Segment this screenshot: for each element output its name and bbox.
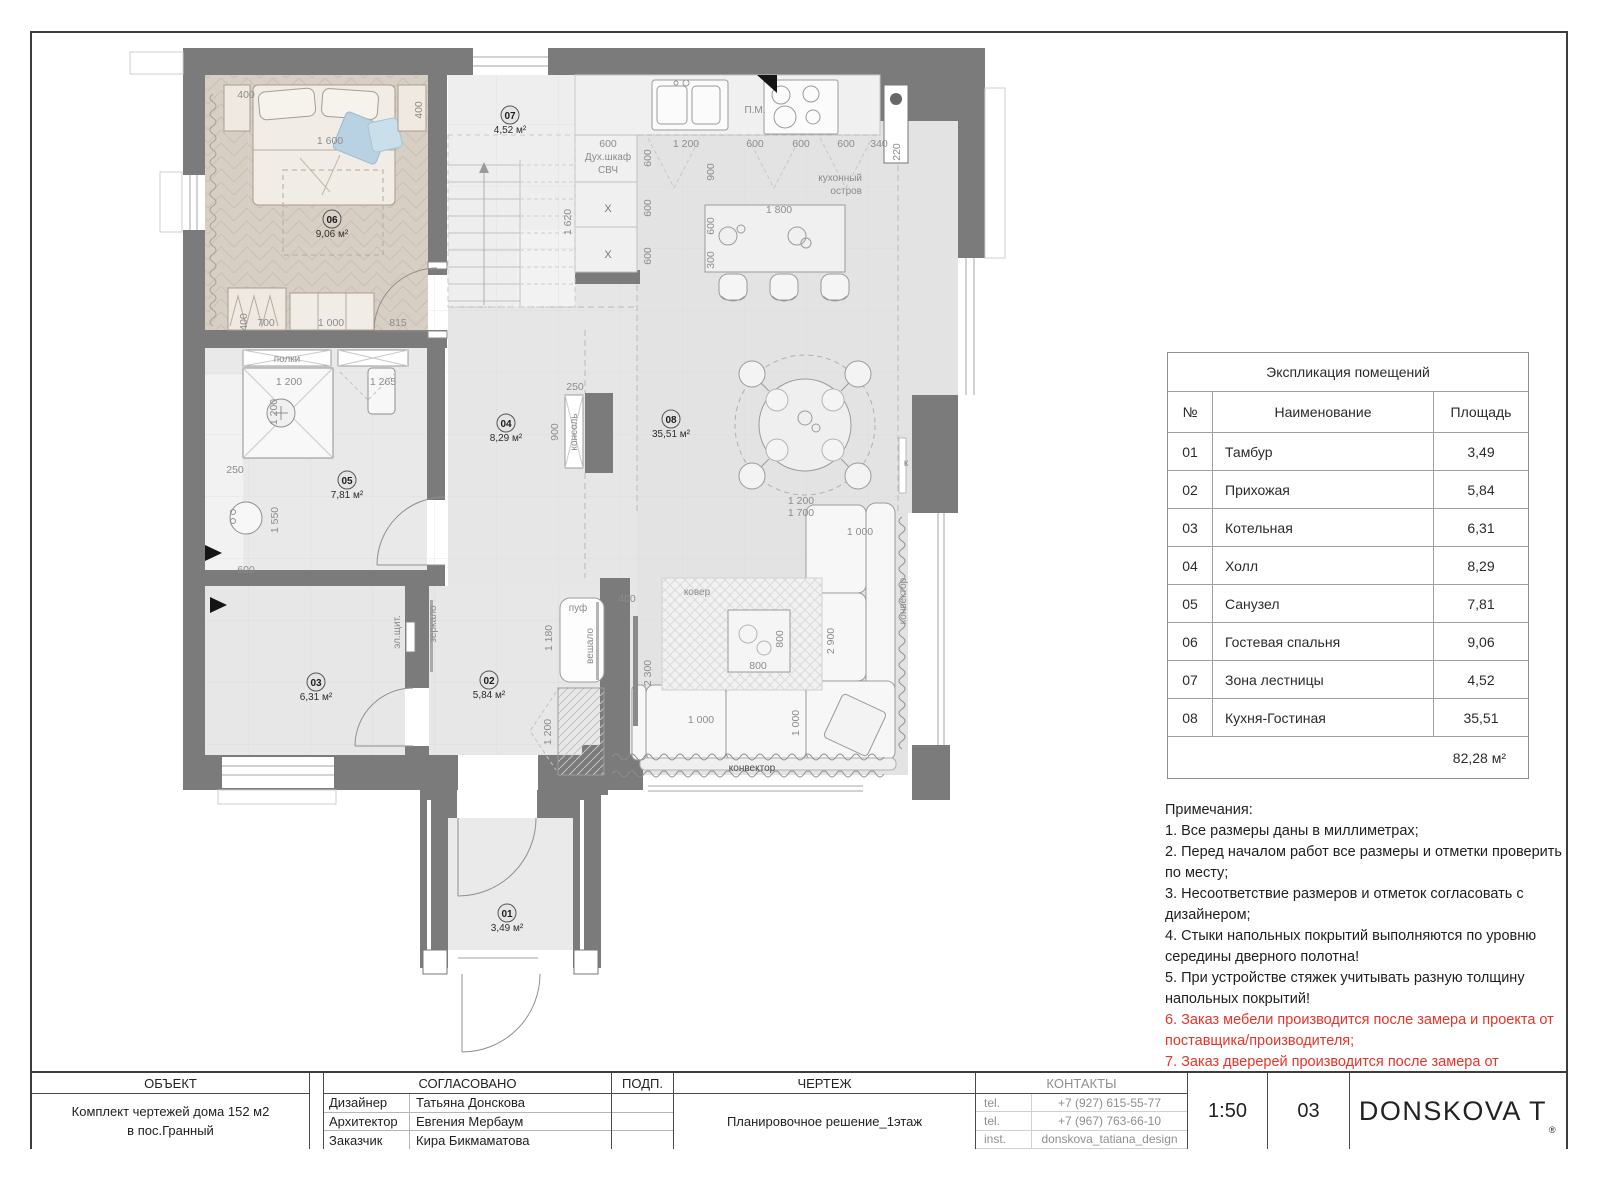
cell-name: Кухня-Гостиная	[1213, 699, 1434, 736]
room-area-label: 3,49 м²	[491, 923, 524, 934]
pouf-label: пуф	[569, 602, 588, 614]
approved-row: ЗаказчикКира Бикмаматова	[324, 1131, 611, 1149]
contacts-header: КОНТАКТЫ	[976, 1073, 1187, 1094]
dim-label: 800	[774, 630, 786, 648]
brand-section: DONSKOVA T®	[1350, 1073, 1566, 1149]
room-number: 02	[483, 676, 495, 687]
object-line2: в пос.Гранный	[127, 1122, 214, 1141]
cell-name: Котельная	[1213, 509, 1434, 546]
room-number: 05	[341, 476, 353, 487]
dim-label: 900	[705, 163, 717, 181]
dim-label: 600	[642, 199, 654, 217]
drawing-header: ЧЕРТЕЖ	[674, 1073, 975, 1094]
cell-num: 07	[1168, 661, 1213, 698]
dim-label: 250	[226, 464, 244, 476]
table-row: 06Гостевая спальня9,06	[1168, 623, 1528, 661]
dim-label: 800	[749, 660, 767, 672]
cell-area: 6,31	[1434, 509, 1528, 546]
dim-label: 600	[705, 217, 717, 235]
person-name: Евгения Мербаум	[410, 1114, 611, 1129]
note-item: 1. Все размеры даны в миллиметрах;	[1165, 821, 1577, 842]
tv	[633, 616, 638, 726]
table-row: 01Тамбур3,49	[1168, 433, 1528, 471]
room-area-label: 35,51 м²	[652, 429, 691, 440]
dim-label: 600	[642, 247, 654, 265]
role-label: Дизайнер	[324, 1094, 410, 1112]
island-label: кухонный	[818, 173, 862, 184]
room-number: 03	[310, 678, 322, 689]
room-number: 07	[504, 111, 516, 122]
cell-name: Зона лестницы	[1213, 661, 1434, 698]
dim-label: 1 000	[847, 526, 873, 538]
room-number: 04	[500, 419, 512, 430]
console-label: консоль	[569, 413, 580, 450]
note-item: 2. Перед началом работ все размеры и отм…	[1165, 842, 1577, 884]
cell-num: 06	[1168, 623, 1213, 660]
cabinet-x-mark: X	[604, 249, 612, 261]
shelves-label: полки	[274, 354, 301, 365]
scale-section: 1:50	[1188, 1073, 1268, 1149]
dim-label: 340	[870, 138, 888, 150]
room-area-label: 4,52 м²	[494, 125, 527, 136]
room-area-label: 9,06 м²	[316, 229, 349, 240]
scale-value: 1:50	[1188, 1073, 1267, 1149]
contact-type: inst.	[976, 1131, 1032, 1148]
contact-row: tel.+7 (927) 615-55-77	[976, 1094, 1187, 1112]
island-label: остров	[830, 186, 862, 197]
drawing-sheet: { "plan": { "rooms": [ {"num":"01","area…	[0, 0, 1600, 1180]
cell-area: 8,29	[1434, 547, 1528, 584]
cell-num: 02	[1168, 471, 1213, 508]
room-area-label: 5,84 м²	[473, 690, 506, 701]
dim-label: 700	[257, 317, 275, 329]
electrical-panel-label: эл.щит.	[392, 615, 403, 649]
room-area-label: 7,81 м²	[331, 490, 364, 501]
cell-num: 03	[1168, 509, 1213, 546]
table-row: 02Прихожая5,84	[1168, 471, 1528, 509]
dim-label: 300	[705, 251, 717, 269]
convector-label: конвектор	[729, 763, 776, 774]
dim-label: 2 900	[825, 628, 837, 654]
contact-value: +7 (967) 763-66-10	[1032, 1114, 1187, 1128]
object-header: ОБЪЕКТ	[32, 1073, 309, 1094]
contacts-section: КОНТАКТЫ tel.+7 (927) 615-55-77 tel.+7 (…	[976, 1073, 1188, 1149]
dim-label: 1 000	[790, 710, 802, 736]
signature-header: ПОДП.	[612, 1073, 673, 1094]
table-header-row: № Наименование Площадь	[1168, 392, 1528, 433]
dim-label: 1 180	[543, 625, 555, 651]
table-title: Экспликация помещений	[1168, 353, 1528, 392]
cell-num: 08	[1168, 699, 1213, 736]
approved-row: ДизайнерТатьяна Донскова	[324, 1094, 611, 1113]
cell-area: 3,49	[1434, 433, 1528, 470]
cell-name: Тамбур	[1213, 433, 1434, 470]
dim-label: 600	[599, 138, 617, 150]
brand-name: DONSKOVA T	[1359, 1096, 1547, 1127]
table-total-area: 82,28 м²	[1168, 737, 1528, 778]
cell-name: Прихожая	[1213, 471, 1434, 508]
note-item: 4. Стыки напольных покрытий выполняются …	[1165, 926, 1577, 968]
cell-area: 9,06	[1434, 623, 1528, 660]
room-schedule-table: Экспликация помещений № Наименование Пло…	[1167, 352, 1529, 779]
room-number: 08	[665, 415, 677, 426]
cell-name: Холл	[1213, 547, 1434, 584]
table-row: 08Кухня-Гостиная35,51	[1168, 699, 1528, 737]
dim-label: 1 265	[370, 376, 396, 388]
role-label: Заказчик	[324, 1131, 410, 1149]
carpet-label: ковер	[684, 587, 711, 598]
room-area-label: 8,29 м²	[490, 433, 523, 444]
contact-row: inst.donskova_tatiana_design	[976, 1131, 1187, 1149]
note-item: 5. При устройстве стяжек учитывать разну…	[1165, 968, 1577, 1010]
cell-area: 35,51	[1434, 699, 1528, 736]
microwave-label: СВЧ	[598, 165, 618, 176]
dim-label: 600	[837, 138, 855, 150]
approved-header: СОГЛАСОВАНО	[324, 1073, 611, 1094]
dim-label: 250	[566, 381, 584, 393]
note-item: 3. Несоответствие размеров и отметок сог…	[1165, 884, 1577, 926]
note-item: 6. Заказ мебели производится после замер…	[1165, 1010, 1577, 1052]
dim-label: 1 200	[276, 376, 302, 388]
cabinet-x-mark: X	[604, 203, 612, 215]
dim-label: 1 620	[562, 209, 574, 235]
table-row: 07Зона лестницы4,52	[1168, 661, 1528, 699]
dim-label: 1 700	[788, 507, 814, 519]
room-area-label: 6,31 м²	[300, 692, 333, 703]
dim-label: 1 200	[268, 399, 280, 425]
drawing-section: ЧЕРТЕЖ Планировочное решение_1этаж	[674, 1073, 976, 1149]
room-number: 06	[326, 215, 338, 226]
kitchen-island	[705, 205, 849, 301]
dim-label: 1 800	[766, 204, 792, 216]
convector-label: конвектор	[898, 577, 909, 624]
table-row: 04Холл8,29	[1168, 547, 1528, 585]
cell-num: 05	[1168, 585, 1213, 622]
table-row: 03Котельная6,31	[1168, 509, 1528, 547]
coat-rack-label: вешало	[585, 628, 596, 664]
oven-label: Дух.шкаф	[585, 151, 631, 163]
cell-name: Гостевая спальня	[1213, 623, 1434, 660]
dim-label: 900	[549, 423, 561, 441]
person-name: Татьяна Донскова	[410, 1095, 611, 1110]
mirror-label: зеркало	[428, 605, 439, 643]
dim-label: 1 000	[688, 714, 714, 726]
signature-section: ПОДП.	[612, 1073, 674, 1149]
person-name: Кира Бикмаматова	[410, 1133, 611, 1148]
title-block: ОБЪЕКТ Комплект чертежей дома 152 м2 в п…	[30, 1071, 1568, 1149]
dim-label: 1 000	[318, 317, 344, 329]
dim-label: 400	[413, 101, 425, 119]
dim-label: 600	[792, 138, 810, 150]
room-number: 01	[501, 909, 513, 920]
cell-name: Санузел	[1213, 585, 1434, 622]
dishwasher-label: П.М.	[744, 105, 765, 116]
notes-title: Примечания:	[1165, 800, 1577, 821]
contact-value: +7 (927) 615-55-77	[1032, 1096, 1187, 1110]
cell-area: 4,52	[1434, 661, 1528, 698]
dim-label: 400	[237, 89, 255, 101]
contact-type: tel.	[976, 1112, 1032, 1129]
column-header-num: №	[1168, 392, 1213, 432]
bar-stools	[719, 274, 849, 301]
dim-label: 815	[389, 317, 407, 329]
dim-label: 600	[642, 149, 654, 167]
drawing-name: Планировочное решение_1этаж	[727, 1114, 922, 1129]
cell-num: 01	[1168, 433, 1213, 470]
dim-label: 1 200	[788, 495, 814, 507]
dim-label: 1 600	[317, 135, 343, 147]
dim-label: 2 300	[642, 660, 654, 686]
dim-label: 1 200	[673, 138, 699, 150]
column-header-area: Площадь	[1434, 392, 1528, 432]
dim-label: 1 200	[542, 719, 554, 745]
column-header-name: Наименование	[1213, 392, 1434, 432]
registered-mark: ®	[1549, 1125, 1557, 1149]
object-section: ОБЪЕКТ Комплект чертежей дома 152 м2 в п…	[32, 1073, 310, 1149]
cell-area: 5,84	[1434, 471, 1528, 508]
approved-section: СОГЛАСОВАНО ДизайнерТатьяна Донскова Арх…	[324, 1073, 612, 1149]
sheet-number: 03	[1268, 1073, 1349, 1149]
dim-label: 600	[746, 138, 764, 150]
convector-short-label: к	[904, 458, 909, 469]
contact-value: donskova_tatiana_design	[1032, 1132, 1187, 1146]
dim-label: 400	[618, 593, 636, 605]
contact-row: tel.+7 (967) 763-66-10	[976, 1112, 1187, 1130]
role-label: Архитектор	[324, 1113, 410, 1131]
approved-row: АрхитекторЕвгения Мербаум	[324, 1113, 611, 1132]
cell-num: 04	[1168, 547, 1213, 584]
spacer-column	[310, 1073, 324, 1149]
dim-label: 1 550	[269, 507, 281, 533]
object-line1: Комплект чертежей дома 152 м2	[72, 1103, 270, 1122]
cell-area: 7,81	[1434, 585, 1528, 622]
dim-label: 220	[891, 143, 903, 161]
dim-label: 600	[237, 564, 255, 576]
sheet-number-section: 03	[1268, 1073, 1350, 1149]
dim-label: 400	[238, 313, 250, 331]
contact-type: tel.	[976, 1094, 1032, 1111]
notes-block: Примечания: 1. Все размеры даны в миллим…	[1165, 800, 1577, 1094]
table-row: 05Санузел7,81	[1168, 585, 1528, 623]
